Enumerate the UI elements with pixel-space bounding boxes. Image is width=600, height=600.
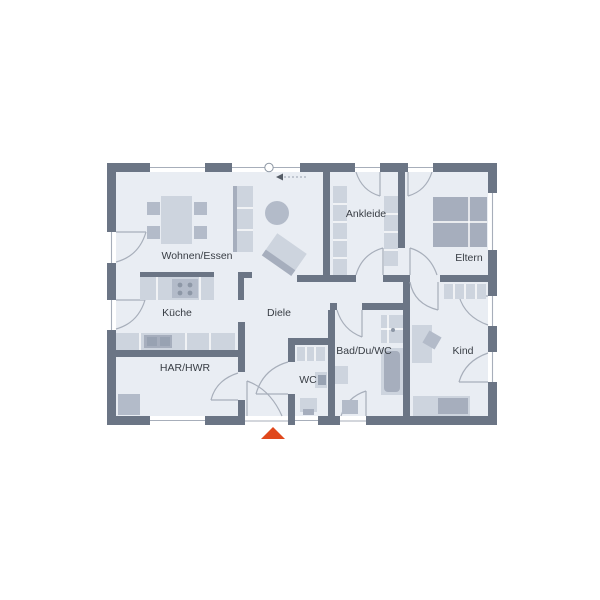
chair — [194, 202, 207, 215]
side-table — [265, 201, 289, 225]
wc-cabinet — [297, 347, 325, 361]
room-label-kueche: Küche — [162, 307, 192, 319]
kitchen-island — [140, 272, 214, 300]
window — [488, 296, 497, 326]
window — [408, 163, 433, 172]
room-label-kind: Kind — [452, 345, 473, 357]
wardrobe — [444, 284, 486, 299]
patio-door — [107, 300, 116, 330]
cooktop — [172, 279, 198, 298]
sideboard — [233, 186, 253, 252]
chair — [147, 226, 160, 239]
window — [355, 163, 380, 172]
appliance — [118, 394, 140, 415]
room-label-wc: WC — [299, 374, 317, 386]
window — [488, 352, 497, 382]
window — [150, 163, 205, 172]
dining-table — [161, 196, 192, 244]
chair — [147, 202, 160, 215]
floor-plan: Wohnen/Essen Ankleide Eltern Küche Diele… — [0, 0, 600, 600]
wc-sink — [315, 372, 327, 388]
window — [295, 416, 318, 425]
bathroom-sink — [335, 366, 348, 384]
floor-plan-page: Wohnen/Essen Ankleide Eltern Küche Diele… — [0, 0, 600, 600]
window — [150, 416, 205, 425]
kitchen-counter — [116, 333, 235, 350]
chair — [194, 226, 207, 239]
patio-door — [107, 232, 116, 263]
room-label-wohnen-essen: Wohnen/Essen — [161, 250, 232, 262]
room-label-har-hwr: HAR/HWR — [160, 362, 211, 374]
room-label-diele: Diele — [267, 307, 291, 319]
toilet — [342, 400, 358, 414]
entrance-door-opening — [245, 416, 288, 425]
shower — [381, 315, 403, 343]
wardrobe — [333, 186, 347, 275]
vent-icon — [265, 163, 273, 171]
window — [488, 193, 497, 250]
room-label-ankleide: Ankleide — [346, 208, 386, 220]
door-opening — [340, 416, 366, 425]
wardrobe — [384, 196, 398, 266]
single-bed — [413, 396, 470, 416]
room-label-bad-du-wc: Bad/Du/WC — [336, 345, 392, 357]
double-bed — [433, 197, 487, 247]
room-label-eltern: Eltern — [455, 252, 483, 264]
entrance-arrow-icon — [261, 427, 285, 439]
